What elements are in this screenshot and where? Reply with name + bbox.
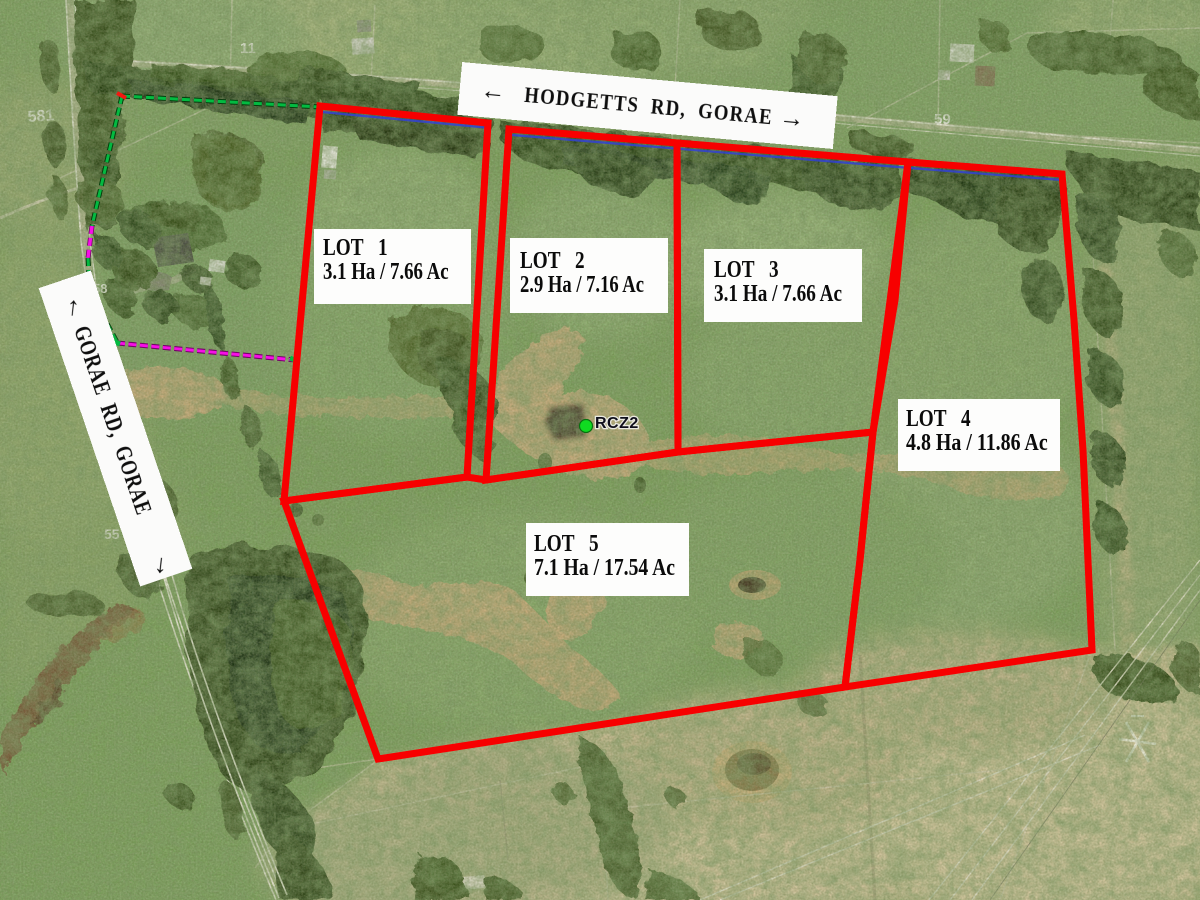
svg-text:RCZ2: RCZ2 <box>595 415 639 432</box>
